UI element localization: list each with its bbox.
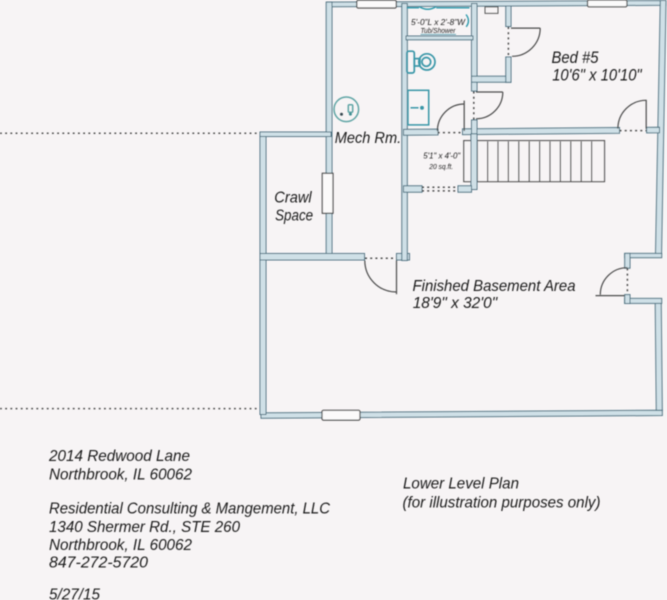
svg-text:(for illustration purposes onl: (for illustration purposes only) [403, 494, 601, 511]
svg-text:5'1" x 4'-0": 5'1" x 4'-0" [423, 152, 461, 161]
svg-text:Tub/Shower: Tub/Shower [421, 26, 456, 35]
svg-text:Northbrook, IL 60062: Northbrook, IL 60062 [49, 537, 192, 554]
svg-text:847-272-5720: 847-272-5720 [49, 554, 148, 571]
svg-text:1340 Shermer Rd., STE 260: 1340 Shermer Rd., STE 260 [49, 519, 240, 536]
svg-text:20 sq.ft.: 20 sq.ft. [428, 162, 453, 171]
svg-text:Bed #5: Bed #5 [552, 49, 600, 67]
svg-text:18'9" x 32'0": 18'9" x 32'0" [413, 295, 499, 312]
svg-text:Mech Rm.: Mech Rm. [335, 130, 402, 147]
svg-text:Space: Space [275, 208, 313, 225]
svg-text:Finished Basement Area: Finished Basement Area [413, 278, 576, 295]
svg-text:Northbrook, IL 60062: Northbrook, IL 60062 [49, 466, 192, 483]
svg-text:Residential Consulting & Mange: Residential Consulting & Mangement, LLC [49, 501, 331, 518]
svg-text:Lower Level Plan: Lower Level Plan [403, 475, 519, 492]
svg-text:5/27/15: 5/27/15 [49, 586, 100, 600]
svg-text:10'6" x 10'10": 10'6" x 10'10" [552, 66, 643, 84]
svg-text:2014 Redwood Lane: 2014 Redwood Lane [48, 448, 190, 465]
svg-text:Crawl: Crawl [274, 190, 312, 207]
